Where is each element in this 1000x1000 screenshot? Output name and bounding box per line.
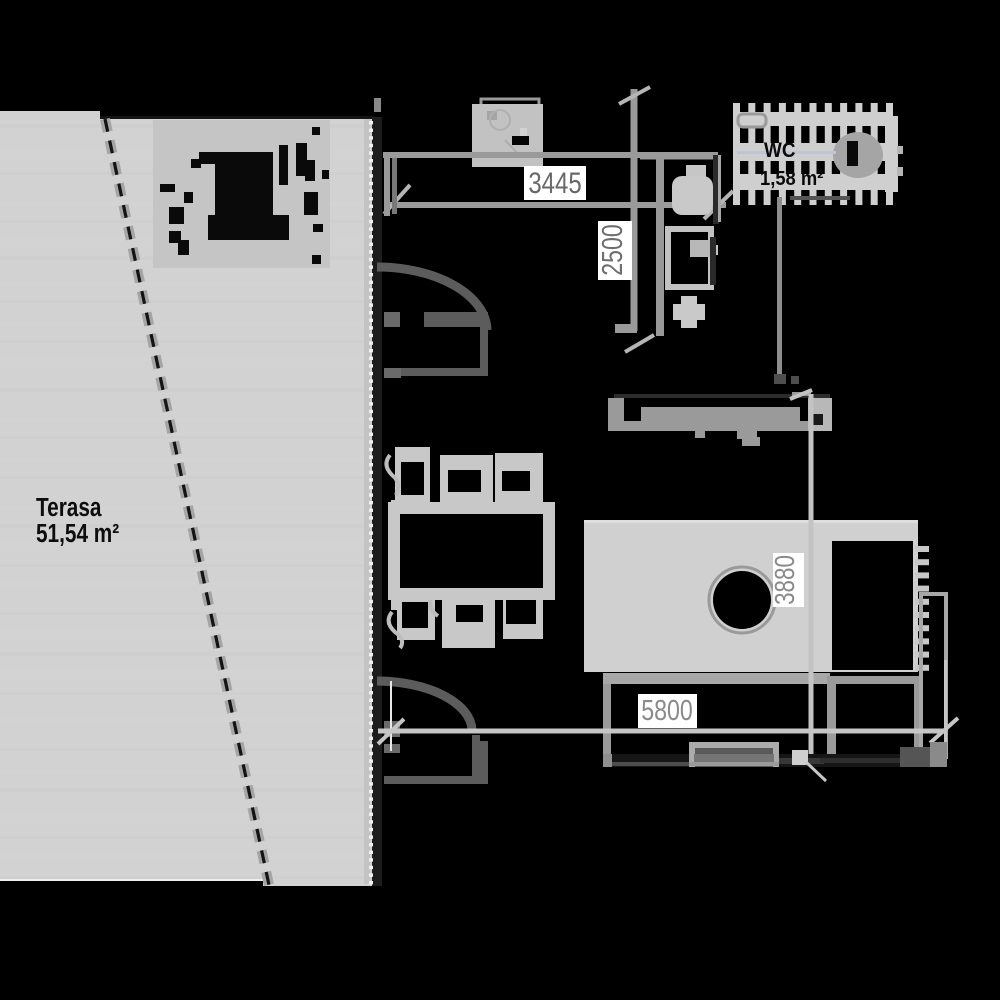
svg-text:Terasa: Terasa: [36, 493, 102, 522]
svg-text:WC: WC: [764, 139, 795, 162]
svg-text:3445: 3445: [528, 165, 581, 199]
svg-text:3880: 3880: [770, 555, 801, 605]
svg-text:51,54 m²: 51,54 m²: [36, 519, 119, 548]
svg-text:5800: 5800: [641, 693, 693, 726]
svg-text:2500: 2500: [595, 224, 628, 276]
svg-text:1,58 m²: 1,58 m²: [760, 168, 823, 190]
